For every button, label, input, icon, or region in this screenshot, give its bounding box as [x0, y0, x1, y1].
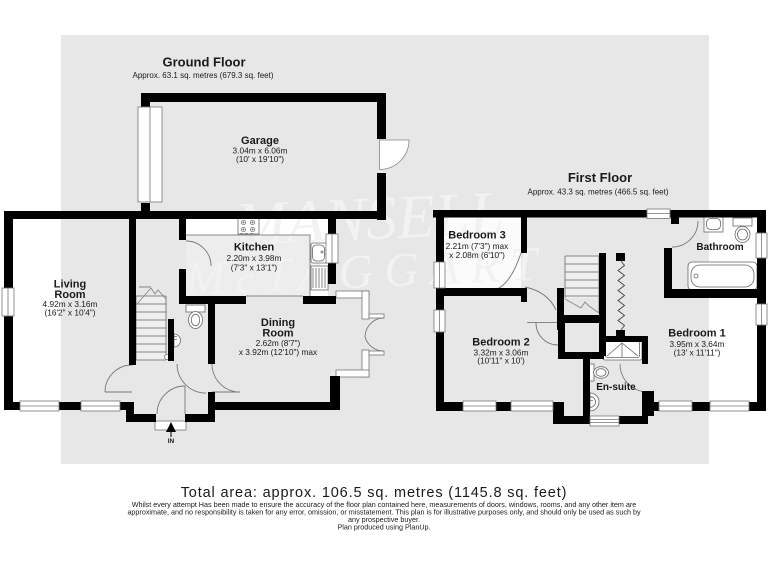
svg-text:First Floor: First Floor: [568, 170, 632, 185]
svg-text:(10' x 19'10"): (10' x 19'10"): [236, 154, 284, 164]
svg-text:Ground Floor: Ground Floor: [162, 55, 245, 70]
svg-text:2.20m x 3.98m: 2.20m x 3.98m: [227, 253, 282, 263]
svg-text:x 2.08m (6'10"): x 2.08m (6'10"): [449, 250, 505, 260]
svg-text:Kitchen: Kitchen: [234, 242, 275, 254]
svg-text:(16'2" x 10'4"): (16'2" x 10'4"): [44, 308, 95, 318]
svg-text:Total area: approx. 106.5 sq.: Total area: approx. 106.5 sq. metres (11…: [181, 485, 568, 501]
svg-text:En-suite: En-suite: [596, 382, 636, 393]
svg-text:(13' x 11'11"): (13' x 11'11"): [674, 348, 721, 358]
svg-text:Bedroom 1: Bedroom 1: [668, 328, 725, 340]
svg-text:Plan produced using PlanUp.: Plan produced using PlanUp.: [337, 523, 430, 532]
svg-text:IN: IN: [168, 438, 175, 445]
svg-text:Bedroom 3: Bedroom 3: [448, 230, 505, 242]
svg-text:x 3.92m (12'10") max: x 3.92m (12'10") max: [239, 347, 318, 357]
svg-text:(10'11" x 10'): (10'11" x 10'): [477, 356, 525, 366]
svg-text:(7'3" x 13'1"): (7'3" x 13'1"): [231, 263, 278, 273]
svg-text:Approx. 43.3 sq. metres (466.5: Approx. 43.3 sq. metres (466.5 sq. feet): [528, 188, 669, 197]
svg-text:Approx. 63.1 sq. metres (679.3: Approx. 63.1 sq. metres (679.3 sq. feet): [133, 71, 274, 80]
svg-text:Bathroom: Bathroom: [696, 242, 743, 253]
